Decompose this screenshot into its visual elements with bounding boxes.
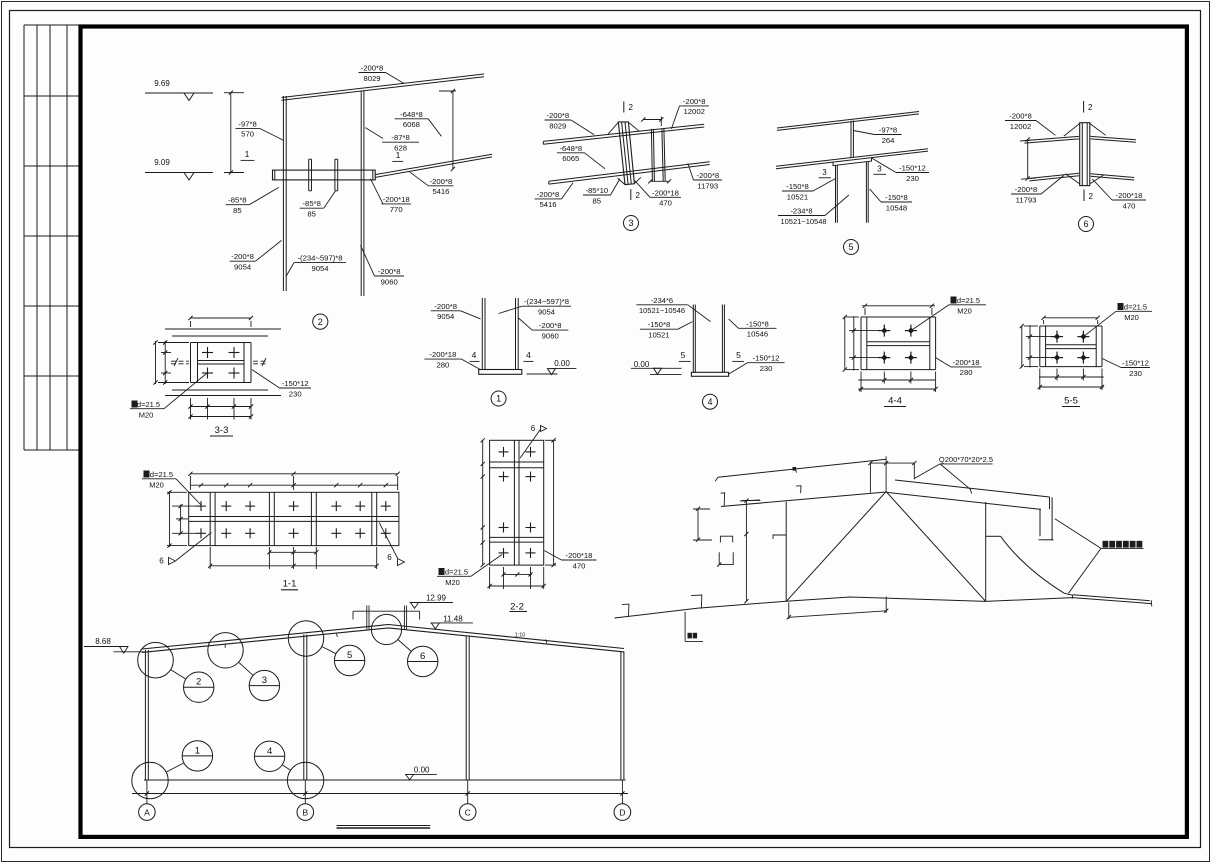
svg-text:4: 4 (707, 397, 712, 407)
svg-text:-200*8: -200*8 (683, 97, 706, 106)
svg-text:4-4: 4-4 (888, 396, 902, 407)
svg-text:3: 3 (822, 168, 827, 177)
svg-text:-150*8: -150*8 (786, 182, 809, 191)
svg-text:-150*8: -150*8 (746, 319, 769, 328)
svg-text:1-1: 1-1 (283, 579, 297, 590)
svg-text:-200*18: -200*18 (383, 195, 410, 204)
svg-text:9060: 9060 (381, 277, 398, 286)
svg-text:2: 2 (636, 191, 641, 200)
svg-text:10521: 10521 (648, 331, 669, 340)
svg-text:-85*8: -85*8 (228, 196, 246, 205)
svg-text:D: D (619, 807, 625, 817)
svg-text:9054: 9054 (311, 264, 329, 273)
svg-text:-150*12: -150*12 (1122, 359, 1149, 368)
svg-text:11.48: 11.48 (443, 615, 463, 624)
svg-text:230: 230 (289, 389, 302, 398)
svg-text:1: 1 (496, 394, 501, 404)
svg-text:-(234~597)*8: -(234~597)*8 (524, 297, 569, 306)
svg-text:6068: 6068 (403, 120, 420, 129)
svg-text:2-2: 2-2 (510, 602, 524, 613)
svg-text:-200*8: -200*8 (361, 64, 384, 73)
svg-text:-648*8: -648*8 (400, 110, 423, 119)
svg-text:-648*8: -648*8 (559, 144, 582, 153)
svg-text:9054: 9054 (234, 263, 252, 272)
svg-text:470: 470 (659, 199, 672, 208)
svg-text:10521~10546: 10521~10546 (639, 306, 685, 315)
svg-text:5: 5 (347, 650, 352, 661)
svg-text:470: 470 (573, 561, 586, 570)
svg-text:9.09: 9.09 (154, 158, 170, 167)
svg-text:2: 2 (1088, 103, 1093, 112)
svg-text:10521: 10521 (787, 192, 808, 201)
svg-text:4: 4 (526, 350, 531, 360)
svg-text:85: 85 (593, 196, 602, 205)
svg-text:85: 85 (233, 206, 242, 215)
svg-text:-97*8: -97*8 (879, 126, 897, 135)
svg-text:-150*12: -150*12 (899, 164, 926, 173)
svg-text:-150*8: -150*8 (885, 193, 908, 202)
svg-text:230: 230 (760, 364, 773, 373)
svg-text:d=21.5: d=21.5 (1124, 303, 1147, 312)
svg-text:1: 1 (245, 149, 250, 159)
svg-text:A: A (144, 807, 150, 817)
svg-text:-150*12: -150*12 (753, 354, 780, 363)
svg-text:-(234~597)*8: -(234~597)*8 (297, 254, 342, 263)
svg-text:C: C (465, 807, 471, 817)
svg-text:5: 5 (848, 242, 853, 252)
svg-text:6: 6 (387, 553, 392, 562)
svg-text:d=21.5: d=21.5 (137, 400, 160, 409)
svg-text:230: 230 (906, 174, 919, 183)
svg-text:264: 264 (882, 136, 896, 145)
svg-text:-87*8: -87*8 (391, 133, 409, 142)
svg-text:d=21.5: d=21.5 (445, 568, 468, 577)
svg-text:5-5: 5-5 (1064, 396, 1078, 407)
svg-text:4: 4 (472, 350, 477, 360)
svg-text:-200*8: -200*8 (546, 111, 569, 120)
svg-text:-234*8: -234*8 (790, 207, 812, 216)
svg-text:6: 6 (531, 424, 536, 433)
svg-text:1:10: 1:10 (515, 633, 526, 639)
svg-text:3-3: 3-3 (215, 425, 229, 436)
svg-text:5416: 5416 (539, 200, 556, 209)
svg-text:9.69: 9.69 (154, 79, 170, 88)
svg-text:-200*8: -200*8 (434, 302, 457, 311)
svg-text:-200*8: -200*8 (430, 177, 453, 186)
svg-text:M20: M20 (139, 411, 154, 420)
svg-text:-150*8: -150*8 (648, 320, 671, 329)
svg-text:85: 85 (307, 210, 316, 219)
svg-text:2: 2 (318, 317, 323, 327)
svg-text:Q200*70*20*2.5: Q200*70*20*2.5 (939, 455, 993, 464)
svg-text:2: 2 (196, 677, 201, 688)
svg-text:-200*18: -200*18 (429, 350, 456, 359)
svg-text:2: 2 (629, 103, 634, 112)
svg-text:-234*6: -234*6 (651, 296, 673, 305)
svg-text:10521~10548: 10521~10548 (780, 217, 826, 226)
svg-text:9054: 9054 (437, 312, 455, 321)
svg-text:6: 6 (420, 651, 425, 662)
svg-text:11793: 11793 (1016, 195, 1037, 204)
svg-text:B: B (302, 807, 308, 817)
svg-text:8029: 8029 (549, 121, 566, 130)
svg-text:0.00: 0.00 (634, 360, 650, 369)
svg-text:8029: 8029 (363, 74, 380, 83)
svg-text:-97*8: -97*8 (238, 119, 256, 128)
svg-text:-200*18: -200*18 (652, 188, 679, 197)
svg-text:470: 470 (1123, 201, 1136, 210)
svg-text:-200*18: -200*18 (953, 358, 980, 367)
svg-text:d=21.5: d=21.5 (957, 296, 980, 305)
svg-text:-200*8: -200*8 (1015, 185, 1038, 194)
svg-text:3: 3 (877, 165, 882, 174)
svg-text:3: 3 (628, 218, 633, 228)
svg-text:280: 280 (436, 360, 449, 369)
svg-text:M20: M20 (149, 481, 164, 490)
svg-text:-85*8: -85*8 (303, 199, 321, 208)
svg-text:M20: M20 (1124, 313, 1139, 322)
svg-text:12.99: 12.99 (426, 594, 447, 603)
svg-text:5416: 5416 (432, 187, 449, 196)
svg-text:-200*8: -200*8 (537, 190, 560, 199)
svg-text:280: 280 (960, 368, 973, 377)
svg-text:-200*8: -200*8 (539, 321, 562, 330)
svg-text:6: 6 (1083, 219, 1088, 229)
svg-text:-200*18: -200*18 (566, 551, 593, 560)
svg-text:9060: 9060 (542, 331, 559, 340)
svg-text:12002: 12002 (1010, 122, 1031, 131)
svg-text:-200*8: -200*8 (378, 267, 401, 276)
svg-text:6: 6 (159, 557, 164, 566)
svg-text:-150*12: -150*12 (282, 379, 309, 388)
svg-text:4: 4 (267, 746, 272, 757)
svg-text:-200*18: -200*18 (1116, 191, 1143, 200)
svg-text:-200*8: -200*8 (1009, 112, 1032, 121)
svg-text:6065: 6065 (562, 154, 579, 163)
svg-text:0.00: 0.00 (414, 766, 430, 775)
svg-text:12002: 12002 (684, 107, 705, 116)
svg-text:M20: M20 (445, 578, 460, 587)
svg-text:0.00: 0.00 (554, 359, 570, 368)
svg-text:5: 5 (681, 350, 686, 360)
svg-text:-200*8: -200*8 (231, 252, 254, 261)
svg-text:2: 2 (1089, 192, 1094, 201)
svg-text:5: 5 (736, 350, 741, 360)
svg-text:9054: 9054 (538, 308, 556, 317)
svg-text:570: 570 (241, 130, 254, 139)
svg-text:3: 3 (262, 675, 267, 686)
svg-text:10548: 10548 (886, 203, 907, 212)
svg-text:10546: 10546 (747, 330, 768, 339)
svg-text:-85*10: -85*10 (585, 186, 608, 195)
svg-text:8.68: 8.68 (95, 637, 111, 646)
svg-text:770: 770 (390, 205, 403, 214)
svg-text:1: 1 (396, 150, 401, 160)
svg-text:11793: 11793 (697, 181, 718, 190)
svg-text:d=21.5: d=21.5 (150, 470, 173, 479)
svg-text:230: 230 (1129, 369, 1142, 378)
svg-text:M20: M20 (957, 307, 972, 316)
svg-text:1: 1 (195, 745, 200, 756)
svg-text:-200*8: -200*8 (696, 171, 719, 180)
